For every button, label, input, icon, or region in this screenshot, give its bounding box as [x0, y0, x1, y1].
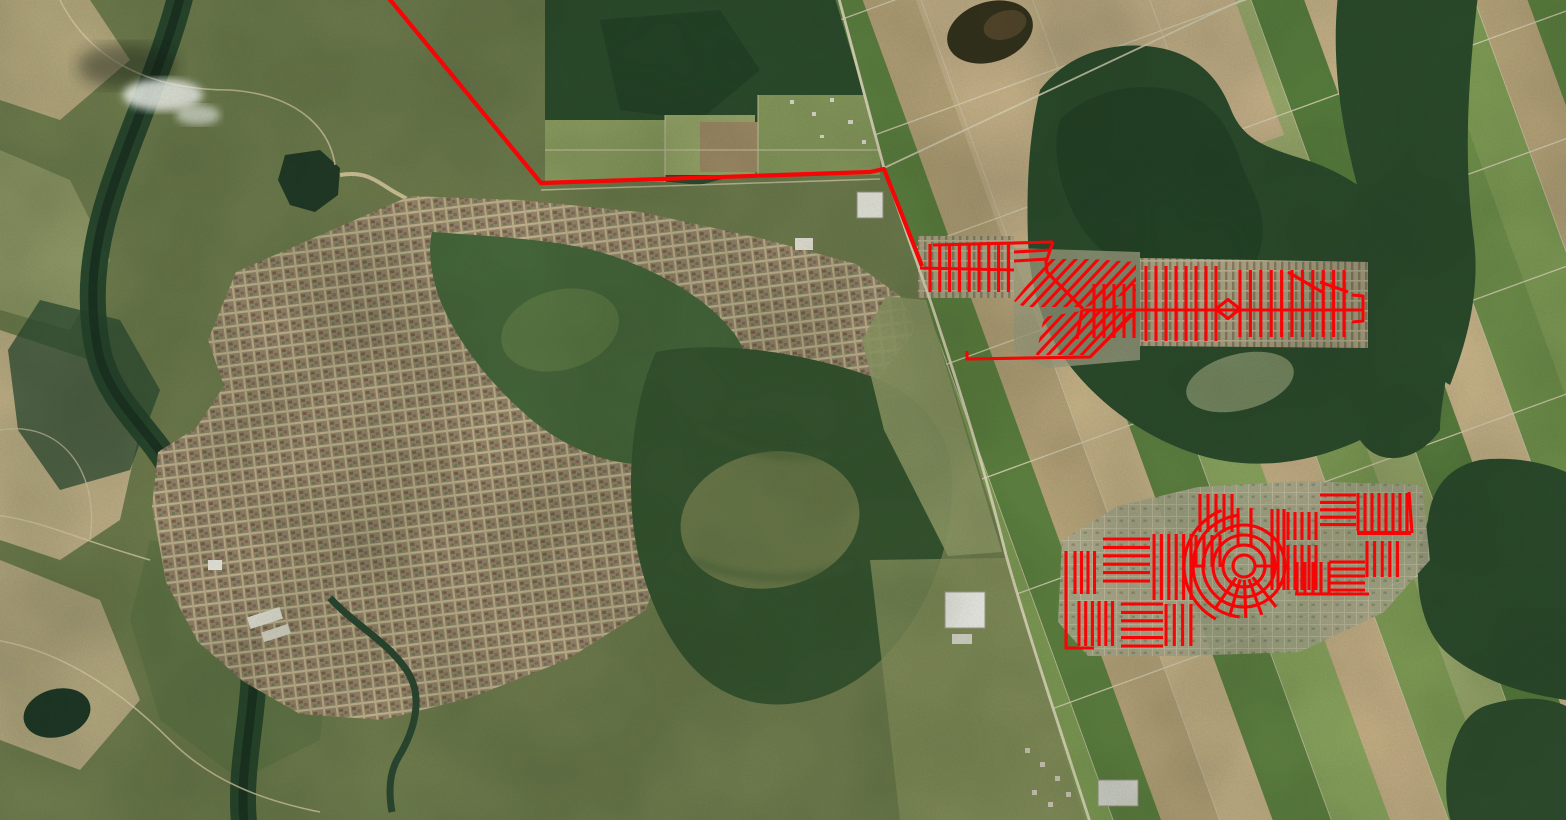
- satellite-imagery: [0, 0, 1566, 820]
- image-grain: [0, 0, 1566, 820]
- satellite-map-canvas[interactable]: [0, 0, 1566, 820]
